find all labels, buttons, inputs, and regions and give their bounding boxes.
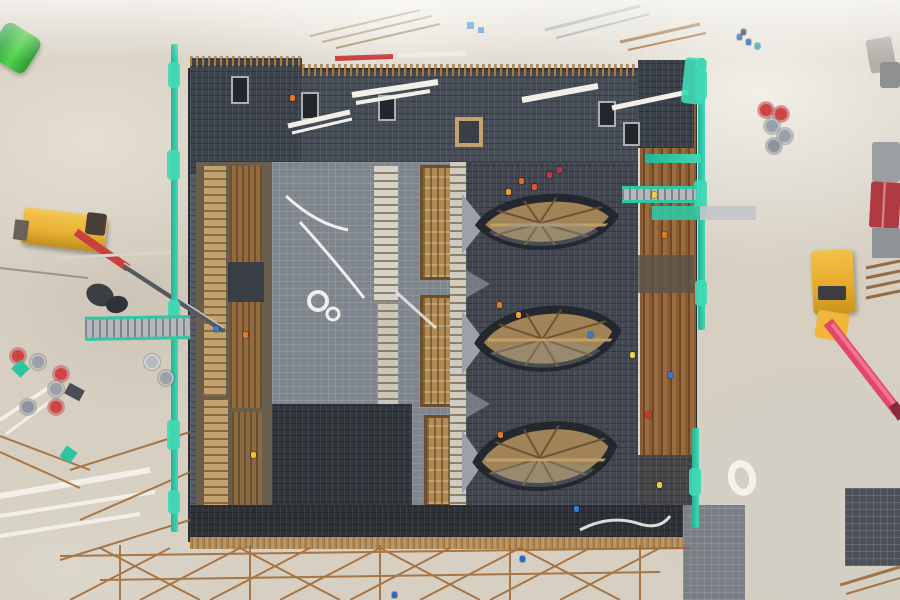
worker — [662, 232, 667, 238]
worker — [668, 372, 673, 378]
intake-eye-structure — [479, 304, 617, 374]
walkway-bridge — [622, 186, 696, 203]
worker — [392, 592, 397, 598]
fence-mesh-blob — [167, 150, 180, 180]
intake-eye-structure — [477, 420, 613, 494]
fence-mesh-blob — [168, 490, 180, 514]
worker — [737, 34, 742, 40]
worker — [519, 178, 524, 184]
worker — [251, 452, 256, 458]
worker — [243, 332, 248, 338]
drum-gray — [30, 354, 46, 370]
worker — [755, 43, 760, 49]
worker — [547, 172, 552, 178]
walkway-path — [652, 206, 756, 220]
drum-gray — [20, 399, 36, 415]
worker — [588, 332, 593, 338]
worker — [652, 192, 657, 198]
intake-eye-structure — [480, 192, 614, 252]
blue-tarp-bit — [478, 27, 484, 33]
drum-gray — [144, 354, 160, 370]
white-hoses — [286, 196, 670, 530]
drum-gray — [158, 370, 174, 386]
fence-mesh-blob — [689, 468, 701, 496]
worker — [741, 29, 746, 35]
worker — [214, 326, 219, 332]
walkway-bridge — [85, 315, 190, 341]
worker — [630, 352, 635, 358]
fence-mesh-blob — [695, 280, 707, 306]
linework-overlay — [0, 0, 900, 600]
worker — [532, 184, 537, 190]
worker — [657, 482, 662, 488]
worker — [646, 412, 651, 418]
drum-gray — [48, 381, 64, 397]
worker — [746, 39, 751, 45]
blue-tarp-bit — [467, 22, 474, 29]
loose-pole — [0, 268, 88, 278]
worker — [506, 189, 511, 195]
drum-red — [48, 399, 64, 415]
drum-red — [758, 102, 774, 118]
worker — [557, 167, 562, 173]
worker — [498, 432, 503, 438]
safety-fence-left — [171, 44, 178, 532]
worker — [520, 556, 525, 562]
fence-mesh-blob — [167, 420, 180, 450]
worker — [574, 506, 579, 512]
worker — [497, 302, 502, 308]
fence-mesh-blob — [168, 62, 180, 88]
safety-fence-horizontal — [645, 154, 701, 163]
right-crane-boom — [828, 322, 900, 418]
aerial-photo — [0, 0, 900, 600]
drum-gray — [766, 138, 782, 154]
worker — [516, 312, 521, 318]
drum-red — [53, 366, 69, 382]
worker — [290, 95, 295, 101]
